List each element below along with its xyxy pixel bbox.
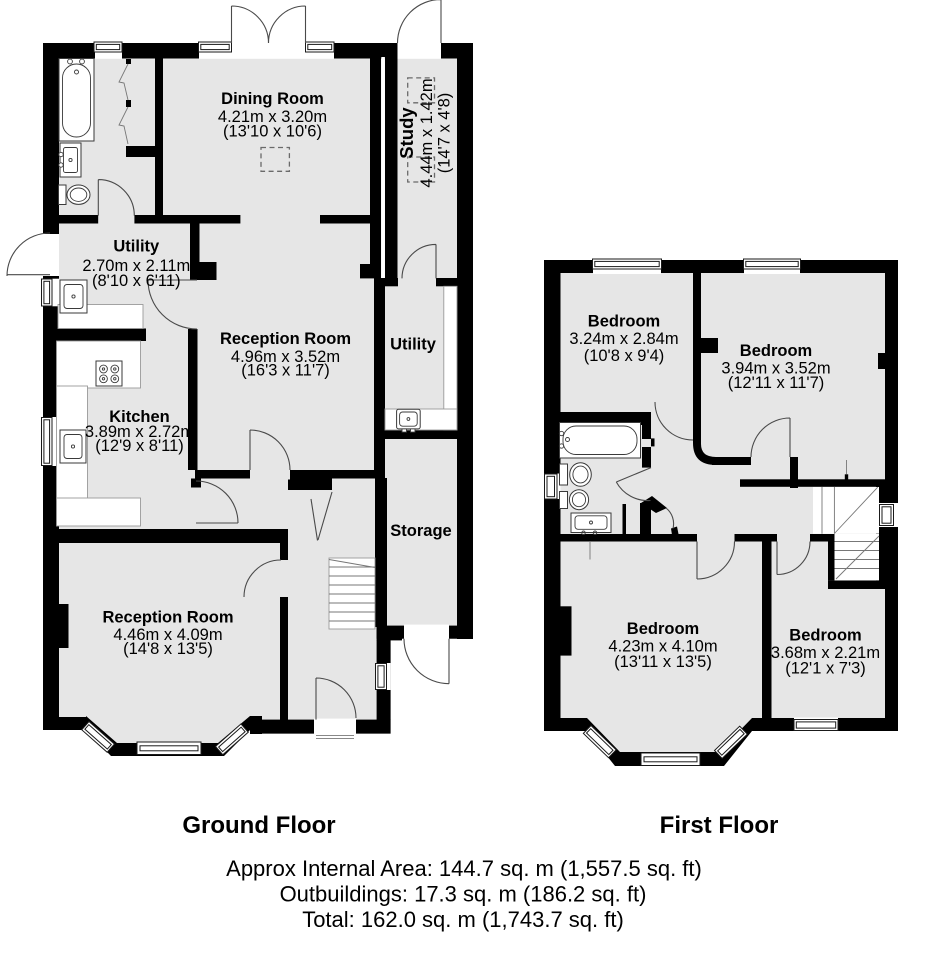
svg-text:(10'8 x 9'4): (10'8 x 9'4) xyxy=(584,347,665,365)
svg-text:Approx Internal Area: 144.7 sq: Approx Internal Area: 144.7 sq. m (1,557… xyxy=(226,856,702,881)
svg-text:(14'7 x 4'8): (14'7 x 4'8) xyxy=(436,93,454,174)
svg-text:Bedroom: Bedroom xyxy=(740,342,812,360)
svg-text:Reception Room: Reception Room xyxy=(220,330,351,348)
svg-text:3.24m x 2.84m: 3.24m x 2.84m xyxy=(569,330,678,348)
svg-text:(12'1 x 7'3): (12'1 x 7'3) xyxy=(785,660,866,678)
svg-text:(16'3 x 11'7): (16'3 x 11'7) xyxy=(241,362,330,380)
svg-text:Dining Room: Dining Room xyxy=(221,90,324,108)
svg-text:Ground Floor: Ground Floor xyxy=(182,812,335,839)
svg-text:(13'11 x 13'5): (13'11 x 13'5) xyxy=(614,653,712,671)
svg-text:Utility: Utility xyxy=(390,335,437,353)
svg-text:(13'10 x 10'6): (13'10 x 10'6) xyxy=(223,123,322,141)
svg-text:Total: 162.0 sq. m (1,743.7 sq: Total: 162.0 sq. m (1,743.7 sq. ft) xyxy=(302,907,624,932)
svg-text:Outbuildings: 17.3 sq. m (186.: Outbuildings: 17.3 sq. m (186.2 sq. ft) xyxy=(280,882,647,907)
svg-text:(12'9 x 8'11): (12'9 x 8'11) xyxy=(95,437,184,455)
svg-text:Bedroom: Bedroom xyxy=(789,626,861,644)
svg-text:4.44m x 1.42m: 4.44m x 1.42m xyxy=(418,78,436,187)
svg-text:Storage: Storage xyxy=(390,522,451,540)
svg-text:(8'10 x 6'11): (8'10 x 6'11) xyxy=(92,272,181,290)
svg-text:(12'11 x 11'7): (12'11 x 11'7) xyxy=(728,374,825,392)
svg-text:Bedroom: Bedroom xyxy=(627,620,699,638)
svg-text:Reception Room: Reception Room xyxy=(102,608,233,626)
svg-text:(14'8 x 13'5): (14'8 x 13'5) xyxy=(123,640,213,658)
svg-text:First Floor: First Floor xyxy=(660,812,779,839)
svg-text:Bedroom: Bedroom xyxy=(588,313,660,331)
svg-text:Study: Study xyxy=(396,107,417,159)
svg-text:Utility: Utility xyxy=(113,238,160,256)
